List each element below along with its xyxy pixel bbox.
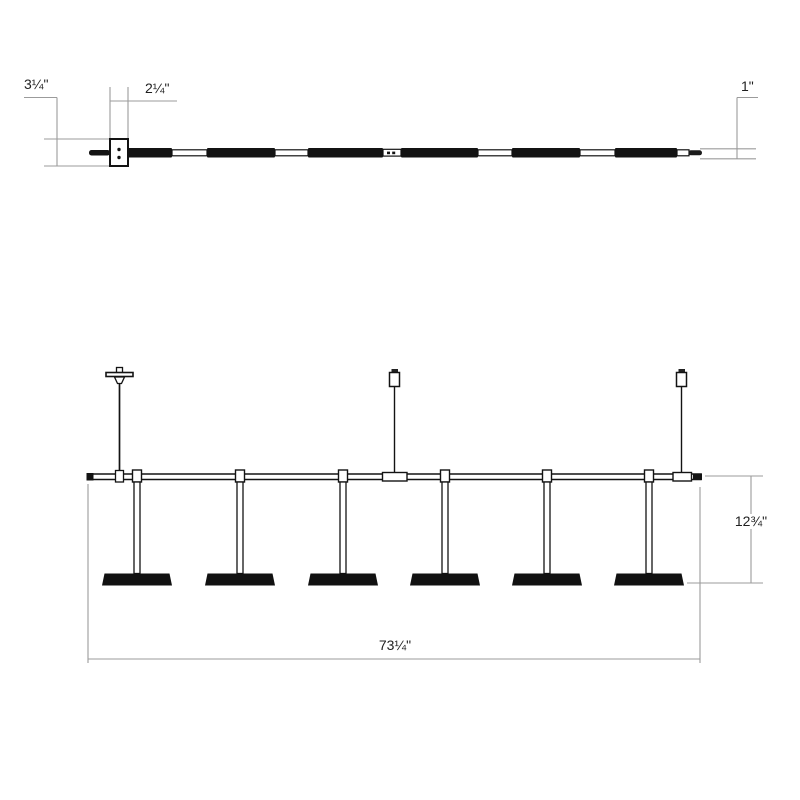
dim-label-canopy-width: 2¼" bbox=[145, 81, 169, 96]
cable-gripper bbox=[116, 471, 124, 483]
inline-feed-box bbox=[383, 473, 408, 482]
plan-end-fitting bbox=[677, 150, 702, 156]
plan-canopy bbox=[110, 139, 128, 166]
drawing-linework bbox=[0, 0, 800, 800]
elev-suspension-middle bbox=[383, 369, 408, 481]
plan-view bbox=[24, 87, 758, 166]
dim-label-fixture-height: 12¾" bbox=[730, 514, 772, 529]
light-bar-assembly bbox=[205, 470, 275, 586]
plan-left-stem bbox=[89, 150, 110, 156]
elev-rail-left-cap bbox=[87, 473, 94, 481]
elev-suspension-left bbox=[106, 368, 133, 483]
light-bar-assembly bbox=[410, 470, 480, 586]
plan-dim-bar-diameter-lines bbox=[700, 98, 758, 160]
light-bar-assembly bbox=[308, 470, 378, 586]
light-bar-assembly bbox=[614, 470, 684, 586]
elev-rail-right-cap bbox=[693, 474, 702, 481]
cable-gripper bbox=[673, 473, 692, 482]
plan-mid-joiner bbox=[383, 149, 401, 156]
dim-label-overall-length: 73¼" bbox=[372, 638, 418, 653]
light-bar-assembly bbox=[102, 470, 172, 586]
cord-connector bbox=[677, 373, 687, 387]
dim-label-canopy-depth: 3¼" bbox=[24, 77, 48, 92]
cord-connector bbox=[390, 373, 400, 387]
light-bar-assemblies bbox=[102, 470, 684, 586]
elevation-view bbox=[87, 368, 764, 664]
plan-canopy-screw bbox=[117, 148, 120, 151]
plan-dim-canopy-depth-lines bbox=[24, 98, 110, 167]
plan-canopy-screw bbox=[117, 156, 120, 159]
elev-suspension-right bbox=[673, 369, 692, 481]
light-bar-assembly bbox=[512, 470, 582, 586]
plan-fixture bbox=[89, 139, 702, 166]
elev-dim-height-lines bbox=[687, 476, 763, 583]
dim-label-bar-diameter: 1" bbox=[741, 79, 754, 94]
ceiling-plate bbox=[106, 373, 133, 377]
spec-sheet-canvas: 3¼" 2¼" 1" 12¾" 73¼" bbox=[0, 0, 800, 800]
